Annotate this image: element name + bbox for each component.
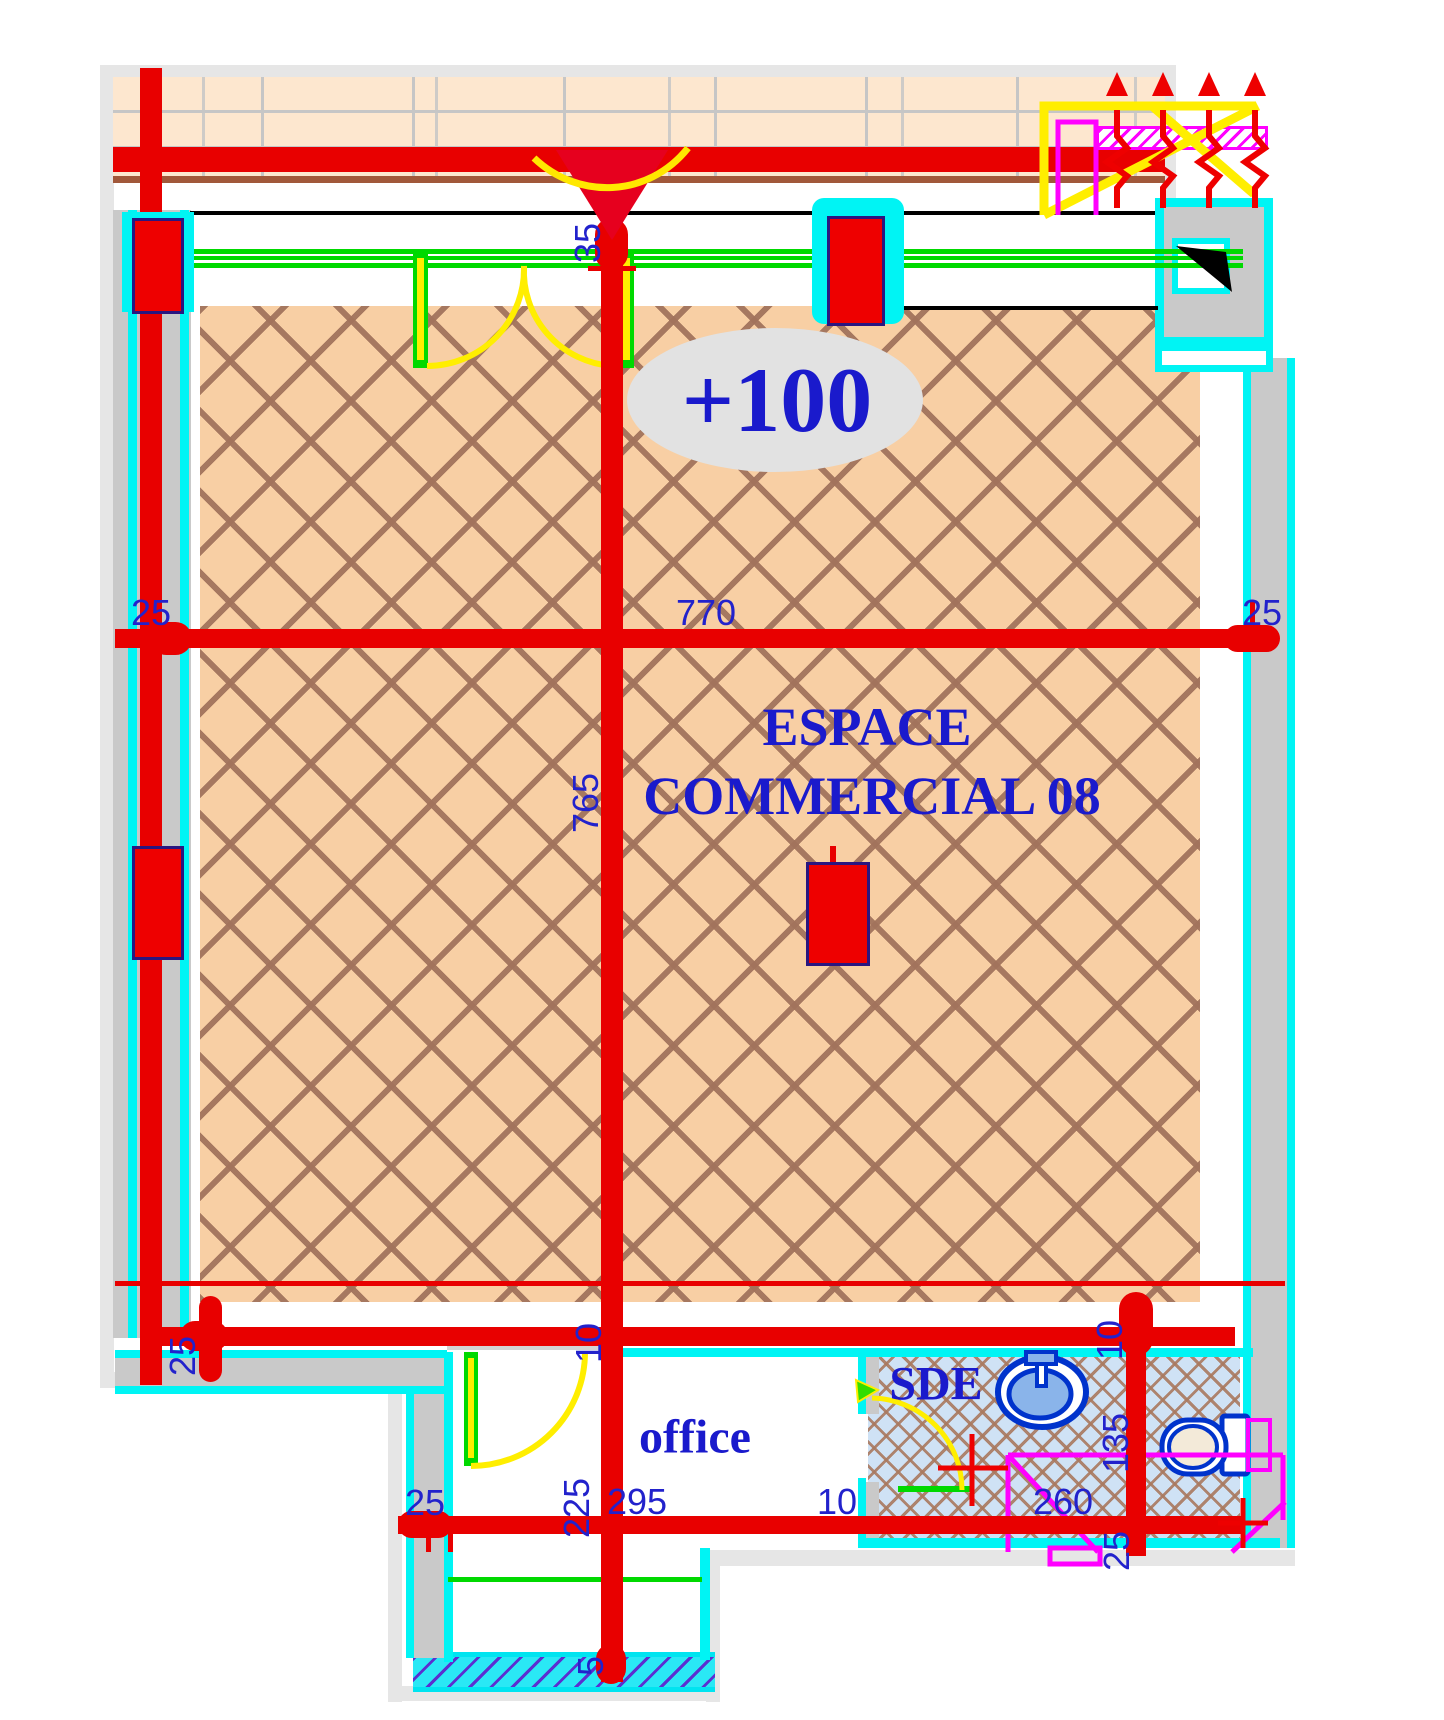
dim-mid-left-offset: 25: [131, 592, 171, 634]
dim-tail-offset: 5: [570, 1656, 612, 1676]
dim-bottom-left-offset: 25: [405, 1482, 445, 1524]
dim-main-height: 765: [565, 773, 607, 833]
level-marker-label: +100: [682, 347, 872, 453]
sde-room-label: SDE: [889, 1357, 982, 1412]
dim-mid-right-offset: 25: [1242, 592, 1282, 634]
dim-top-wall-thickness: 35: [567, 223, 609, 263]
dim-sde-height: 135: [1095, 1413, 1137, 1473]
dim-lower-right-gap: 10: [1089, 1320, 1131, 1360]
main-room-label-line1: ESPACE: [762, 696, 971, 758]
dim-office-depth: 225: [556, 1478, 598, 1538]
dim-office-width: 295: [607, 1481, 667, 1523]
dim-main-width: 770: [676, 592, 736, 634]
dim-lower-center-gap: 10: [568, 1323, 610, 1363]
dim-sde-small-offset: 25: [1096, 1531, 1138, 1571]
office-room-label: office: [639, 1410, 751, 1465]
dim-sde-width: 260: [1033, 1481, 1093, 1523]
dim-partition-gap: 10: [817, 1481, 857, 1523]
main-room-label-line2: COMMERCIAL 08: [643, 765, 1101, 827]
dim-lower-left-offset: 25: [162, 1336, 204, 1376]
floor-plan: +100 ESPACE COMMERCIAL 08 office SDE 35 …: [0, 0, 1444, 1720]
